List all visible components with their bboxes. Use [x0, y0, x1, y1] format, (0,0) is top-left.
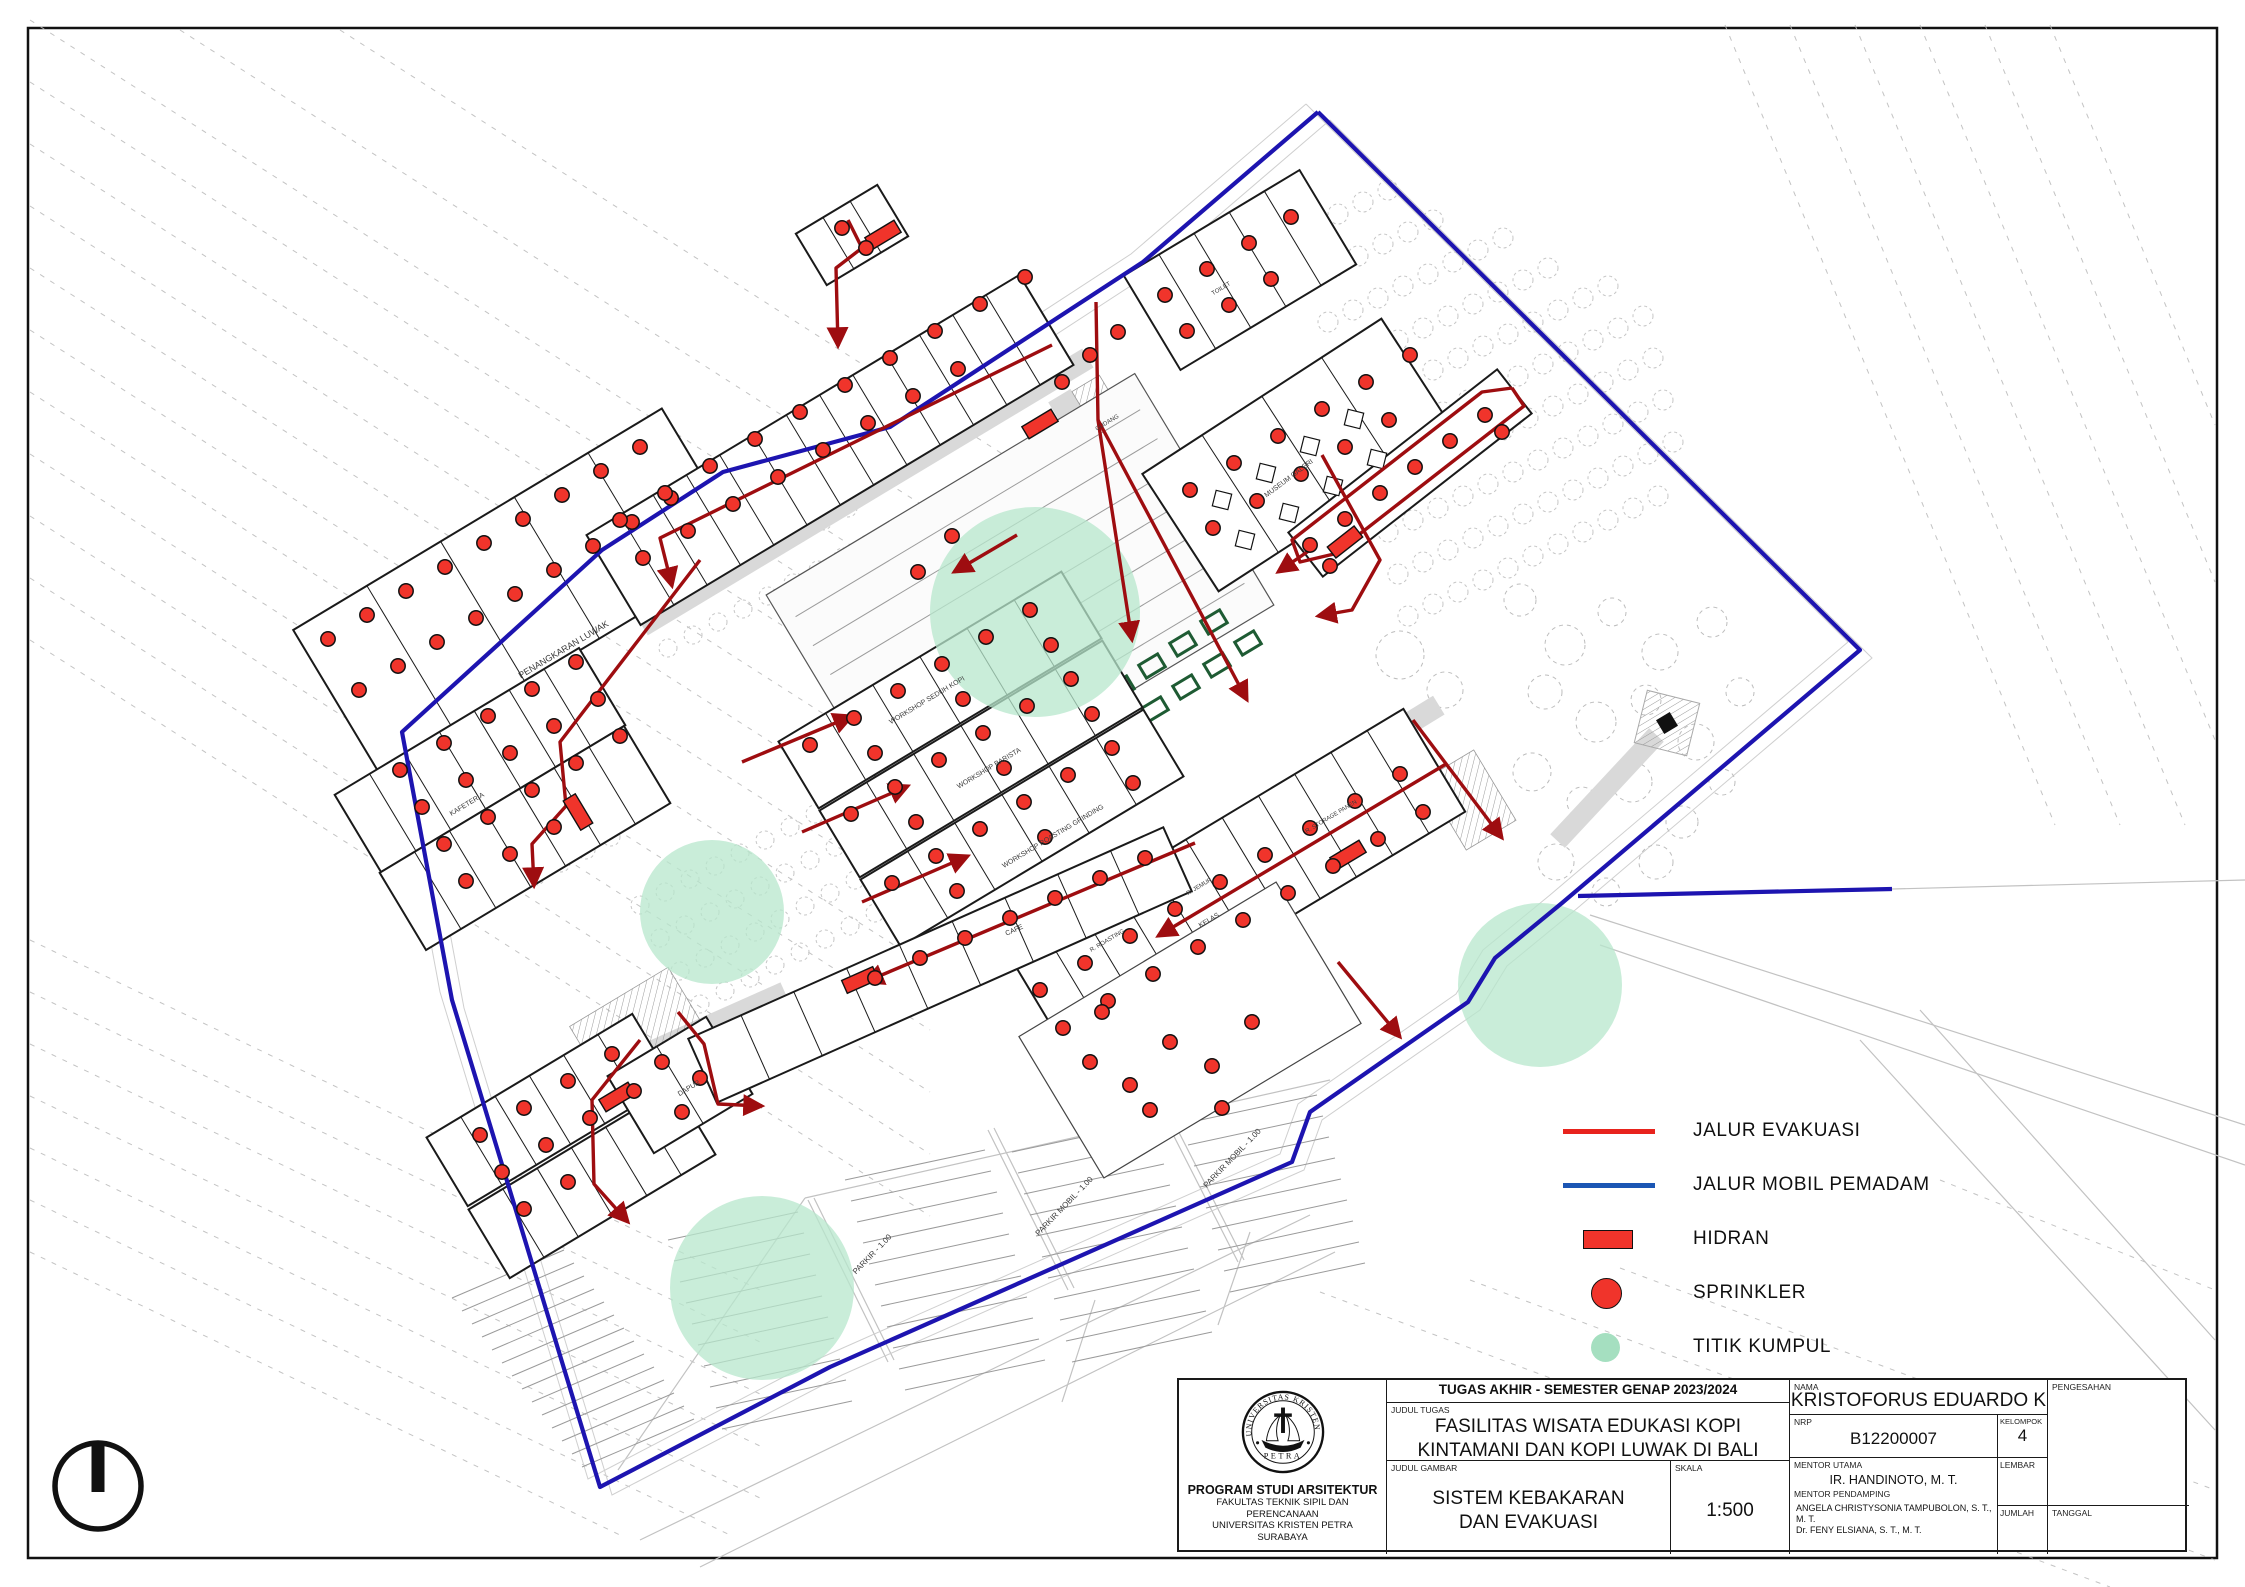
skala-label: SKALA: [1671, 1461, 1789, 1473]
legend-item: HIDRAN: [1563, 1212, 1983, 1266]
mentor-utama-value: IR. HANDINOTO, M. T.: [1790, 1473, 1997, 1487]
legend: JALUR EVAKUASIJALUR MOBIL PEMADAMHIDRANS…: [1563, 1104, 1983, 1374]
institution-university: UNIVERSITAS KRISTEN PETRA: [1179, 1520, 1386, 1532]
judul-gambar-line2: DAN EVAKUASI: [1387, 1511, 1670, 1535]
nrp-value: B12200007: [1790, 1429, 1997, 1449]
drawing-sheet: PENANGKARAN LUWAKWORKSHOP SEDUH KOPIWORK…: [0, 0, 2245, 1587]
logo-sail-icon: [1266, 1415, 1280, 1440]
judul-tugas-cell: JUDUL TUGAS FASILITAS WISATA EDUKASI KOP…: [1386, 1402, 1789, 1460]
logo-cross-icon: [1281, 1408, 1285, 1433]
nama-cell: NAMA KRISTOFORUS EDUARDO K: [1789, 1380, 2047, 1414]
mentor-pendamping-2: Dr. FENY ELSIANA, S. T., M. T.: [1796, 1525, 1997, 1536]
kelompok-cell: KELOMPOK 4: [1997, 1414, 2047, 1457]
legend-item: TITIK KUMPUL: [1563, 1320, 1983, 1374]
legend-symbol-line-red-icon: [1563, 1129, 1655, 1134]
mentor-utama-label: MENTOR UTAMA: [1790, 1458, 1997, 1470]
judul-tugas-label: JUDUL TUGAS: [1387, 1403, 1789, 1415]
institution-program: PROGRAM STUDI ARSITEKTUR: [1179, 1483, 1386, 1497]
legend-label: SPRINKLER: [1693, 1282, 1806, 1304]
kelompok-value: 4: [1998, 1426, 2047, 1446]
legend-symbol-circle-red-icon: [1563, 1278, 1655, 1309]
legend-item: JALUR EVAKUASI: [1563, 1104, 1983, 1158]
judul-gambar-line1: SISTEM KEBAKARAN: [1387, 1487, 1670, 1511]
judul-tugas-line1: FASILITAS WISATA EDUKASI KOPI: [1387, 1415, 1789, 1439]
legend-symbol-rect-red-icon: [1563, 1230, 1655, 1249]
north-arrow-icon: [55, 1441, 141, 1529]
skala-value: 1:500: [1671, 1499, 1789, 1523]
judul-gambar-cell: JUDUL GAMBAR SISTEM KEBAKARAN DAN EVAKUA…: [1386, 1460, 1670, 1554]
judul-gambar-label: JUDUL GAMBAR: [1387, 1461, 1670, 1473]
nrp-label: NRP: [1790, 1415, 1997, 1427]
logo-text-bottom: PETRA: [1263, 1451, 1302, 1460]
nrp-cell: NRP B12200007: [1789, 1414, 1997, 1457]
mentor-cell: MENTOR UTAMA IR. HANDINOTO, M. T. MENTOR…: [1789, 1457, 1997, 1554]
jumlah-cell: JUMLAH: [1997, 1505, 2047, 1554]
legend-item: JALUR MOBIL PEMADAM: [1563, 1158, 1983, 1212]
svg-text:PARKIR - 1.00: PARKIR - 1.00: [851, 1232, 894, 1276]
legend-label: JALUR MOBIL PEMADAM: [1693, 1174, 1930, 1196]
institution-city: SURABAYA: [1179, 1532, 1386, 1544]
nama-value: KRISTOFORUS EDUARDO K: [1790, 1389, 2047, 1413]
skala-cell: SKALA 1:500: [1670, 1460, 1789, 1554]
mentor-pendamping-1: ANGELA CHRISTYSONIA TAMPUBOLON, S. T., M…: [1796, 1503, 1997, 1525]
legend-symbol-circle-green-icon: [1563, 1333, 1655, 1362]
legend-item: SPRINKLER: [1563, 1266, 1983, 1320]
legend-symbol-line-blue-icon: [1563, 1183, 1655, 1188]
jumlah-label: JUMLAH: [1998, 1506, 2047, 1518]
petra-logo: UNIVERSITAS KRISTEN PETRA: [1239, 1388, 1327, 1476]
institution-faculty: FAKULTAS TEKNIK SIPIL DAN PERENCANAAN: [1179, 1497, 1386, 1520]
pengesahan-cell: PENGESAHAN: [2047, 1380, 2189, 1505]
header-cell: TUGAS AKHIR - SEMESTER GENAP 2023/2024: [1386, 1380, 1789, 1402]
lembar-label: LEMBAR: [1998, 1458, 2047, 1470]
svg-text:PARKIR MOBIL - 1.00: PARKIR MOBIL - 1.00: [1034, 1174, 1096, 1237]
logo-cell: UNIVERSITAS KRISTEN PETRA PROGRAM STUDI …: [1179, 1380, 1386, 1550]
legend-label: JALUR EVAKUASI: [1693, 1120, 1861, 1142]
title-block: UNIVERSITAS KRISTEN PETRA PROGRAM STUDI …: [1177, 1378, 2187, 1552]
tanggal-cell: TANGGAL: [2047, 1505, 2189, 1554]
logo-ship-hull-icon: [1261, 1440, 1304, 1452]
mentor-pendamping-label: MENTOR PENDAMPING: [1790, 1487, 1997, 1499]
judul-tugas-line2: KINTAMANI DAN KOPI LUWAK DI BALI: [1387, 1439, 1789, 1460]
lembar-cell: LEMBAR: [1997, 1457, 2047, 1505]
kelompok-label: KELOMPOK: [1998, 1415, 2047, 1426]
legend-label: TITIK KUMPUL: [1693, 1336, 1831, 1358]
legend-label: HIDRAN: [1693, 1228, 1769, 1250]
pengesahan-label: PENGESAHAN: [2048, 1380, 2189, 1392]
buildings: [293, 170, 1531, 1278]
tanggal-label: TANGGAL: [2048, 1506, 2189, 1518]
